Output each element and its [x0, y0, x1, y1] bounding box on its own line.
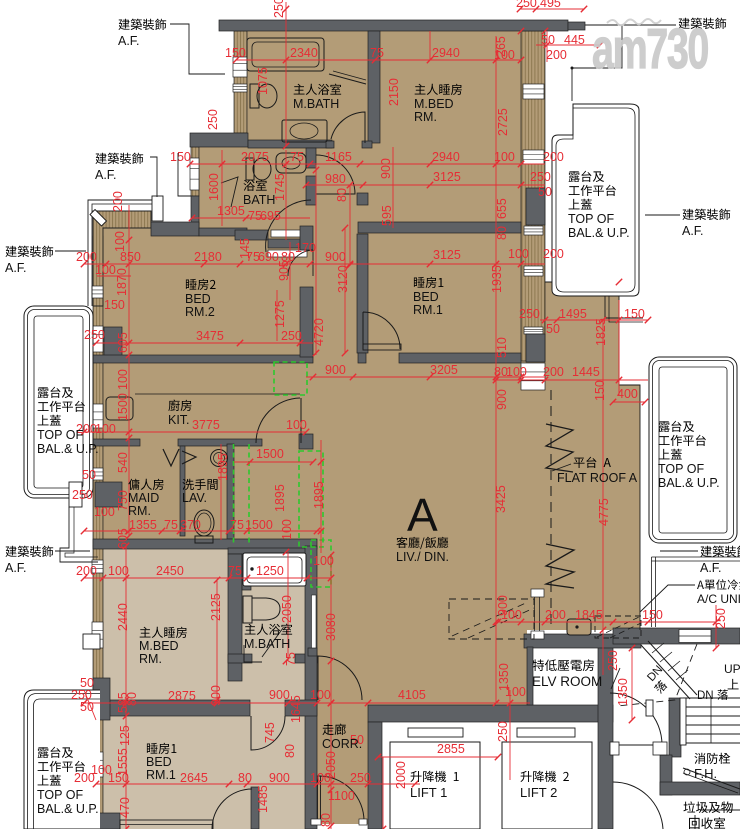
svg-text:200: 200	[74, 771, 95, 785]
svg-text:2075: 2075	[241, 150, 269, 164]
svg-text:655: 655	[495, 198, 509, 219]
svg-text:470: 470	[118, 797, 132, 818]
svg-text:1500: 1500	[256, 447, 284, 461]
svg-text:150: 150	[170, 150, 191, 164]
svg-text:150: 150	[593, 380, 607, 401]
svg-text:100: 100	[313, 554, 334, 568]
svg-text:1350: 1350	[616, 678, 630, 706]
svg-text:4105: 4105	[398, 688, 426, 702]
svg-text:150: 150	[104, 298, 125, 312]
svg-text:3125: 3125	[433, 248, 461, 262]
svg-text:100: 100	[508, 247, 529, 261]
svg-text:100: 100	[506, 365, 527, 379]
svg-text:900: 900	[269, 771, 290, 785]
svg-text:LIFT 1: LIFT 1	[410, 785, 447, 800]
svg-text:1445: 1445	[572, 365, 600, 379]
svg-text:1275: 1275	[273, 300, 287, 328]
svg-text:A.F.: A.F.	[5, 261, 27, 275]
svg-text:1355: 1355	[129, 518, 157, 532]
svg-text:100: 100	[310, 688, 331, 702]
svg-text:1845: 1845	[575, 608, 603, 622]
svg-text:900: 900	[325, 363, 346, 377]
svg-text:100: 100	[95, 422, 116, 436]
svg-text:2440: 2440	[116, 603, 130, 631]
svg-text:1500: 1500	[245, 518, 273, 532]
svg-text:UP: UP	[724, 662, 740, 676]
svg-text:75: 75	[290, 150, 304, 164]
svg-text:2645: 2645	[180, 771, 208, 785]
svg-text:2150: 2150	[387, 78, 401, 106]
svg-text:DN: DN	[697, 690, 714, 702]
svg-text:100: 100	[494, 150, 515, 164]
svg-text:540: 540	[116, 452, 130, 473]
svg-text:80: 80	[238, 771, 252, 785]
svg-text:BAL.& U.P.: BAL.& U.P.	[658, 476, 720, 490]
svg-text:265: 265	[494, 36, 508, 57]
svg-text:2940: 2940	[432, 46, 460, 60]
svg-text:50: 50	[82, 468, 96, 482]
svg-text:1485: 1485	[256, 785, 270, 813]
svg-text:100: 100	[95, 263, 116, 277]
svg-text:80: 80	[335, 188, 349, 202]
svg-text:1825: 1825	[594, 318, 608, 346]
svg-text:2725: 2725	[496, 108, 510, 136]
svg-text:1250: 1250	[256, 564, 284, 578]
svg-text:TOP OF: TOP OF	[658, 462, 704, 476]
svg-text:200: 200	[543, 247, 564, 261]
svg-text:100: 100	[113, 231, 127, 252]
svg-text:250: 250	[496, 721, 510, 742]
svg-text:1350: 1350	[497, 663, 511, 691]
svg-text:RM.1: RM.1	[146, 768, 176, 782]
svg-text:A/C UNIT: A/C UNIT	[697, 592, 740, 606]
svg-text:150: 150	[642, 608, 663, 622]
svg-text:250: 250	[72, 488, 93, 502]
svg-text:510: 510	[495, 337, 509, 358]
svg-text:80: 80	[125, 692, 139, 706]
svg-text:905: 905	[277, 260, 291, 281]
svg-text:1895: 1895	[312, 481, 326, 509]
svg-text:250: 250	[206, 109, 220, 130]
svg-text:M.BED: M.BED	[139, 639, 179, 653]
svg-text:1895: 1895	[216, 453, 230, 481]
svg-text:150: 150	[225, 46, 246, 60]
svg-text:2940: 2940	[432, 150, 460, 164]
svg-text:TOP OF: TOP OF	[37, 428, 83, 442]
svg-text:F.H.: F.H.	[694, 766, 717, 781]
svg-text:CORR.: CORR.	[322, 737, 362, 751]
svg-text:RM.: RM.	[139, 652, 162, 666]
svg-text:605: 605	[116, 528, 130, 549]
svg-text:LIFT 2: LIFT 2	[520, 785, 557, 800]
svg-text:200: 200	[543, 365, 564, 379]
svg-text:250: 250	[516, 0, 537, 10]
svg-text:2050: 2050	[324, 751, 338, 779]
svg-text:2000: 2000	[394, 761, 408, 789]
svg-text:100: 100	[116, 369, 130, 390]
svg-text:3475: 3475	[196, 329, 224, 343]
svg-text:2180: 2180	[194, 250, 222, 264]
svg-text:3120: 3120	[336, 265, 350, 293]
svg-text:BAL.& U.P.: BAL.& U.P.	[37, 442, 99, 456]
svg-text:900: 900	[325, 250, 346, 264]
svg-text:M.BATH: M.BATH	[244, 637, 290, 651]
svg-text:1100: 1100	[328, 789, 355, 803]
svg-text:50: 50	[541, 33, 555, 47]
svg-text:BED: BED	[413, 290, 439, 304]
svg-text:50: 50	[538, 185, 552, 199]
svg-text:100: 100	[108, 564, 129, 578]
svg-text:80: 80	[283, 744, 297, 758]
svg-text:BAL.& U.P.: BAL.& U.P.	[37, 802, 99, 816]
svg-text:RM.2: RM.2	[185, 305, 215, 319]
svg-text:A: A	[407, 489, 438, 541]
svg-text:1495: 1495	[559, 307, 587, 321]
svg-text:605: 605	[116, 332, 130, 353]
svg-text:RM.: RM.	[414, 110, 437, 124]
svg-text:900: 900	[209, 685, 223, 706]
svg-text:2855: 2855	[437, 742, 465, 756]
svg-text:445: 445	[564, 33, 585, 47]
svg-text:1645: 1645	[289, 695, 303, 723]
svg-text:A.F.: A.F.	[95, 168, 117, 182]
svg-text:A.F.: A.F.	[5, 561, 27, 575]
svg-text:50: 50	[80, 700, 94, 714]
svg-text:BED: BED	[185, 292, 211, 306]
svg-text:50: 50	[546, 322, 560, 336]
svg-text:80: 80	[319, 813, 333, 827]
svg-text:170: 170	[295, 241, 316, 255]
svg-text:370: 370	[180, 518, 201, 532]
svg-text:A.F.: A.F.	[118, 34, 140, 48]
svg-text:250: 250	[530, 170, 551, 184]
svg-text:150: 150	[108, 771, 129, 785]
svg-text:100: 100	[94, 505, 115, 519]
svg-text:200: 200	[76, 564, 97, 578]
svg-text:75: 75	[284, 652, 298, 666]
svg-text:100: 100	[286, 418, 307, 432]
svg-text:250: 250	[350, 771, 371, 785]
svg-text:BED: BED	[146, 755, 172, 769]
svg-text:80: 80	[495, 226, 509, 240]
svg-text:am730: am730	[592, 17, 708, 81]
svg-text:2050: 2050	[280, 595, 294, 623]
svg-text:A.F.: A.F.	[682, 224, 704, 238]
svg-text:400: 400	[617, 387, 638, 401]
svg-text:75: 75	[370, 46, 384, 60]
svg-text:1075: 1075	[256, 67, 270, 95]
svg-text:745: 745	[263, 722, 277, 743]
svg-text:900: 900	[495, 389, 509, 410]
svg-text:3125: 3125	[433, 170, 461, 184]
svg-text:1600: 1600	[207, 173, 221, 201]
svg-text:250: 250	[519, 307, 540, 321]
svg-text:2875: 2875	[168, 689, 196, 703]
svg-text:3205: 3205	[430, 363, 458, 377]
svg-text:LIV./ DIN.: LIV./ DIN.	[396, 550, 449, 564]
svg-text:200: 200	[546, 48, 567, 62]
svg-text:KIT.: KIT.	[168, 413, 190, 427]
svg-text:1500: 1500	[116, 393, 130, 421]
svg-text:250: 250	[714, 608, 728, 629]
svg-text:1935: 1935	[490, 265, 504, 293]
svg-text:1895: 1895	[273, 484, 287, 512]
svg-text:100: 100	[280, 519, 294, 540]
svg-text:3425: 3425	[494, 485, 508, 513]
svg-text:ELV ROOM: ELV ROOM	[532, 674, 602, 689]
svg-text:250: 250	[281, 329, 302, 343]
svg-text:MAID: MAID	[128, 491, 159, 505]
svg-text:3080: 3080	[324, 613, 338, 641]
svg-text:695: 695	[260, 209, 281, 223]
svg-text:200: 200	[76, 250, 97, 264]
svg-text:250: 250	[272, 0, 286, 18]
svg-text:1305: 1305	[217, 204, 245, 218]
svg-text:2125: 2125	[209, 593, 223, 621]
svg-text:4720: 4720	[312, 318, 326, 346]
svg-text:595: 595	[380, 205, 394, 226]
svg-text:4775: 4775	[597, 498, 611, 526]
svg-text:75: 75	[164, 518, 178, 532]
svg-text:A.F.: A.F.	[700, 561, 722, 575]
svg-text:250: 250	[606, 650, 620, 671]
svg-text:3775: 3775	[192, 418, 220, 432]
svg-text:900: 900	[269, 688, 290, 702]
svg-text:RM.: RM.	[128, 504, 151, 518]
svg-text:200: 200	[545, 608, 566, 622]
svg-text:200: 200	[543, 150, 564, 164]
svg-text:495: 495	[540, 0, 561, 10]
svg-text:2340: 2340	[290, 46, 318, 60]
svg-text:2450: 2450	[156, 564, 184, 578]
svg-text:1870: 1870	[115, 268, 129, 296]
svg-text:1165: 1165	[325, 150, 352, 164]
svg-text:TOP OF: TOP OF	[568, 212, 614, 226]
svg-text:900: 900	[379, 158, 393, 179]
svg-text:125: 125	[118, 725, 132, 746]
svg-text:BATH: BATH	[243, 193, 275, 207]
svg-text:690: 690	[258, 250, 279, 264]
svg-text:BAL.& U.P.: BAL.& U.P.	[568, 226, 630, 240]
svg-text:RM.1: RM.1	[413, 303, 443, 317]
svg-text:M.BATH: M.BATH	[293, 97, 339, 111]
svg-text:TOP OF: TOP OF	[37, 788, 83, 802]
svg-text:LAV.: LAV.	[182, 491, 207, 505]
svg-text:FLAT ROOF A: FLAT ROOF A	[557, 471, 638, 485]
svg-text:75: 75	[228, 564, 242, 578]
svg-text:900: 900	[496, 595, 510, 616]
svg-text:75: 75	[230, 518, 244, 532]
svg-text:980: 980	[325, 172, 346, 186]
svg-text:250: 250	[84, 328, 105, 342]
svg-text:200: 200	[111, 191, 125, 212]
svg-text:150: 150	[624, 307, 645, 321]
svg-text:M.BED: M.BED	[414, 97, 454, 111]
